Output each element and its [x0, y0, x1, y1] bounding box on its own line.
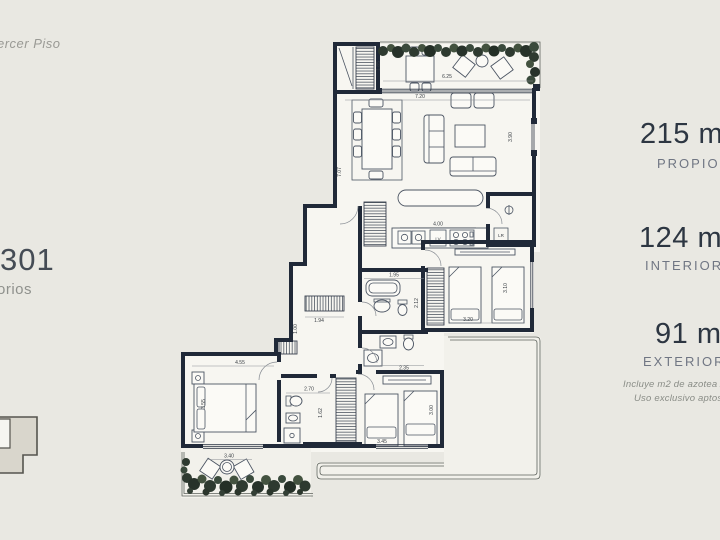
single-bed [449, 267, 481, 323]
toilet [290, 396, 302, 406]
dim-master-width: 4.55 [235, 360, 245, 366]
shower [284, 428, 300, 443]
dim-hall-closet: 1.94 [314, 318, 324, 324]
single-bed [404, 391, 437, 446]
toilet [404, 338, 414, 350]
dim-top-terrace-width: 6.25 [442, 74, 452, 80]
corridor-closet [336, 378, 356, 442]
corner-closet [279, 341, 297, 354]
armchair [474, 93, 494, 108]
dim-bath-mid-width: 2.35 [399, 366, 409, 372]
dim-living-width: 7.20 [415, 94, 425, 100]
page: { "left_panel": { "floor_label": "ercer … [0, 0, 720, 540]
coffee-table [455, 125, 485, 147]
dim-master-bath-depth: 1.62 [318, 408, 324, 418]
dim-bath-top-width: 1.95 [389, 273, 399, 279]
bathtub [366, 280, 400, 296]
dim-kitchen: 4.00 [433, 222, 443, 228]
hall-closet [305, 296, 344, 311]
dim-tv-wall: 3.90 [508, 132, 514, 142]
outdoor-dining-table [406, 56, 434, 82]
nightstand [192, 372, 204, 384]
sink [380, 336, 396, 348]
dim-top-terrace-depth: 1.85 [376, 61, 382, 71]
sofa [424, 115, 444, 163]
kitchen-bar [398, 190, 483, 206]
dim-master-bath-width: 2.70 [304, 387, 314, 393]
single-bed [492, 267, 524, 323]
stair-core [333, 42, 380, 94]
dim-bed3-depth: 3.10 [503, 283, 509, 293]
toilet [398, 305, 407, 316]
pantry-closet [364, 202, 386, 246]
dim-bed2-width: 3.45 [377, 439, 387, 445]
dim-bottom-terrace: 3.40 [224, 454, 234, 460]
bedroom3-closet [427, 268, 444, 325]
dim-side-niche: 1.00 [293, 324, 299, 334]
washer-label: LR [498, 233, 505, 238]
dim-bed3-width: 3.20 [463, 317, 473, 323]
armchair [451, 93, 471, 108]
dining-table [362, 109, 392, 169]
dim-bath-top-depth: 2.12 [414, 298, 420, 308]
dim-master-bed: 3.55 [201, 399, 207, 409]
dim-bed2-depth: 3.00 [429, 405, 435, 415]
dim-living-height: 7.07 [337, 167, 343, 177]
floor-plan: LV LR [0, 0, 720, 540]
